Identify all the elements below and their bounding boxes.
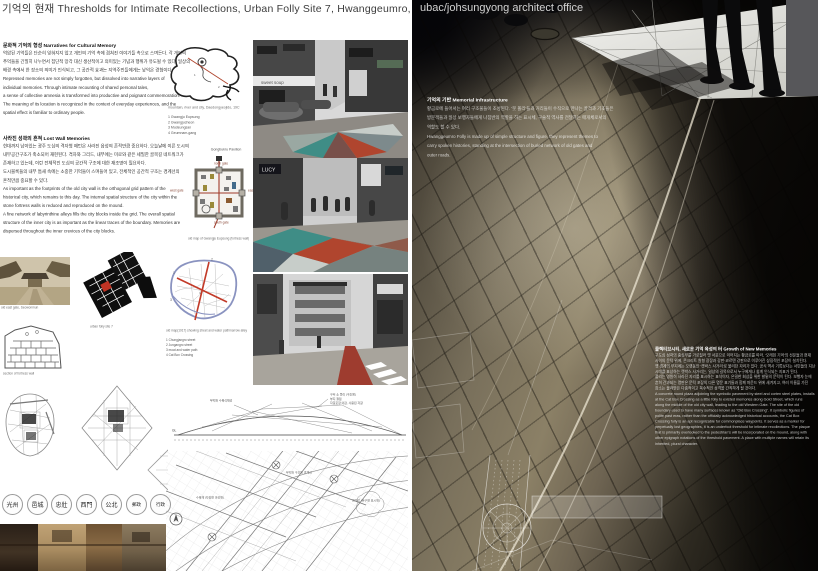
text-line: stone fortress walls is reduced and repr…: [3, 201, 163, 209]
right-edge-structure: [786, 0, 818, 96]
caption: 부지와 구조물 경계선: [286, 470, 312, 475]
seal-stamp-icon: 西門: [76, 494, 97, 515]
shop-sign-text: LUCY: [262, 168, 276, 174]
gate-label-south: south gate: [214, 221, 247, 228]
presentation-board: 기억의 현재 Thresholds for Intimate Recollect…: [0, 0, 818, 571]
historic-photo-strip: [0, 524, 166, 571]
caption: south gate: [214, 221, 229, 224]
ground-level-label: GL: [172, 429, 181, 436]
office-title: ubac/johsungyong architect office: [420, 2, 583, 14]
gate-label-west: west gate: [170, 189, 200, 196]
caption: section of fortress wall: [3, 372, 34, 375]
caption: 수목재 (자갈면 마감재): [196, 495, 224, 500]
svg-text:2: 2: [218, 85, 220, 89]
alley-diagram-diamond: [80, 384, 154, 472]
street-line: [195, 262, 209, 320]
seal-text: 邑城: [31, 500, 43, 509]
fortress-map-caption: old map of Gwangju Eupsung (fortress wal…: [188, 237, 258, 244]
text-line: A fine network of labyrinthine alleys fi…: [3, 210, 163, 218]
caption: west gate: [170, 189, 183, 192]
block-title: 사라진 성곽의 흔적 Lost Wall Memories: [3, 135, 163, 142]
right-panel-photo: ubac/johsungyong architect office 기억의 기반…: [412, 0, 818, 571]
svg-text:1: 1: [173, 271, 175, 275]
seal-text: 忠壯: [55, 500, 67, 509]
street-photo-2: LUCY: [253, 158, 408, 272]
svg-text:4: 4: [199, 291, 201, 295]
manhole-icon: [531, 29, 559, 40]
text-line: 추억들을 긴밀히 나누면서 집단적 망각 대신 생산적이고 의미있는 기념과 행…: [3, 58, 163, 66]
seal-stamp-icon: 光州: [2, 494, 23, 515]
plan-note-right: 경계석 (유구면 표시재): [352, 498, 414, 508]
seal-text: 公北: [105, 500, 117, 509]
text-line: 도시블록들의 내부 틈새 속에는 소중한 기억들이 스며들어 있고, 전체적인 …: [3, 168, 163, 176]
caption: north gate: [214, 162, 228, 165]
caption: old map of Gwangju Eupsung (fortress wal…: [188, 237, 260, 240]
block-title: 콜렉티브시티, 새로운 기억 육성의 터 Growth of New Memor…: [655, 346, 817, 353]
plan-label-mid: 부지와 구조물 경계선: [286, 470, 343, 480]
gate-label-north: north gate: [214, 162, 246, 169]
text-line: As important as the footprints of the ol…: [3, 185, 163, 193]
text-line: boundary used to have many surfaces know…: [655, 408, 817, 414]
block-title: 문화적 기억의 형성 Narratives for Cultural Memor…: [3, 42, 163, 49]
page-title: 기억의 현재 Thresholds for Intimate Recollect…: [2, 1, 457, 16]
text-line: 황금로에 들어서는 여러 구조물들이 조성된다. '뭇 폴리'들과 거리들이 수…: [427, 104, 603, 113]
caption: GL: [172, 429, 176, 433]
route-line: [188, 58, 228, 84]
caption: 자갈포장 마감, 사용된 자갈: [330, 401, 420, 405]
old-gate-photo: [0, 257, 70, 305]
text-line: structure of the inner city is as import…: [3, 218, 163, 226]
alley-diagram-round: [2, 390, 58, 466]
daedongyeojido-sketch-figure: 1 2: [168, 44, 248, 106]
caption: 경계석 (유구면 표시재): [352, 498, 380, 503]
memorial-block: 기억의 기반 Memorial Infrastructure 황금로에 들어서는…: [427, 96, 602, 212]
text-line: 억압된 기억들은 단순히 잊혀지지 않고 개인의 기억 속에 겹쳐진 이야기들 …: [3, 49, 163, 57]
text-line: 역할도 할 수 있다.: [427, 122, 603, 131]
elevation-label-left: 부지와 수목식재선: [210, 398, 260, 408]
left-panel: 기억의 현재 Thresholds for Intimate Recollect…: [0, 0, 412, 571]
round-plaza-plan: [483, 504, 531, 552]
legend-item: 4 Cat Box Crossing: [166, 353, 265, 358]
site-plan-drawing: [166, 451, 408, 571]
text-line: other epigraph notations of the threshol…: [655, 435, 817, 441]
text-line: dispersed throughout the inner crevices …: [3, 227, 163, 235]
svg-text:3: 3: [170, 298, 172, 302]
seal-row: 光州 邑城 忠壯 西門 公北 郵政 行政: [1, 494, 171, 516]
caption: 부지와 수목식재선: [210, 398, 232, 403]
mountain-outline: [171, 48, 238, 101]
wall-sketch-caption: section of fortress wall: [3, 372, 72, 379]
shop-sign-text: sweet soup: [261, 80, 284, 85]
map-1917-figure: 1 2 3 4: [165, 256, 241, 326]
seal-text: 西門: [80, 500, 92, 509]
text-line: a sense of collective amnesia is transfo…: [3, 92, 163, 100]
plan-overlay-drawing: [412, 300, 662, 571]
caption: urban folly site 7: [90, 325, 113, 328]
text-line: individual memories. Through intimate re…: [3, 83, 163, 91]
text-line: historical city, which remains to this d…: [3, 193, 163, 201]
seal-text: 郵政: [132, 502, 141, 508]
text-line: inherited, plural character.: [655, 441, 817, 447]
growth-block: 콜렉티브시티, 새로운 기억 육성의 터 Growth of New Memor…: [655, 346, 817, 539]
text-line: 내부공간구조가 축소되어 재현된다. 격자와 그리드, 내부에는 미로와 같은 …: [3, 151, 163, 159]
seal-stamp-icon: 忠壯: [51, 494, 72, 515]
gate-photo-caption: old east gate, Seowonmun: [1, 306, 84, 313]
text-line: 방문객들과 일상 보행자들에게 나침반의 역할을 하는 표시체, 구술적 역사를…: [427, 113, 603, 122]
text-line: 배경 속에서 한 장소의 의미가 인식되고, 그 공간적 효과는 지역주민들에게…: [3, 66, 163, 74]
street-photo-3: [253, 274, 408, 385]
caption: Gongbukru Pavilion: [196, 148, 256, 152]
seal-stamp-icon: 邑城: [27, 494, 48, 515]
text-line: Hwanggeumro Folly is made up of simple s…: [427, 132, 603, 141]
text-line: The meaning of its location is recognize…: [3, 100, 163, 108]
text-line: carry spoken histories, standing at the …: [427, 141, 603, 150]
text-line: 존재하고 있는데, 이런 전체적인 도심의 공간적 구조에 대한 재조명이 필요…: [3, 159, 163, 167]
block-title: 기억의 기반 Memorial Infrastructure: [427, 96, 603, 104]
svg-text:2: 2: [211, 258, 213, 262]
caption: old east gate, Seowonmun: [1, 306, 38, 309]
text-line: Repressed memories are not simply forgot…: [3, 75, 163, 83]
text-line: outer roads.: [427, 150, 603, 159]
text-line: 현대까지 남아있는 광주 도심의 격자형 패턴은 사라진 읍성의 흔적만큼 중요…: [3, 142, 163, 150]
svg-text:1: 1: [194, 73, 196, 77]
text-line: 구도심 성곽의 중심부를 가로질러 옛 서문으로 이어지는 황금로를 따라, '…: [655, 353, 817, 359]
figure-ground-map: [80, 252, 158, 322]
seal-text: 行政: [156, 502, 165, 508]
text-line: 흔히 간과되는 명판은 문턱 포장의 다른 명문 표기들과 함께 마운드 위에 …: [655, 380, 817, 386]
text-line: spatial effect is familiar to ordinary p…: [3, 108, 163, 116]
seal-stamp-icon: 郵政: [126, 494, 147, 515]
wall-section-sketch: [1, 322, 65, 372]
seal-text: 光州: [6, 500, 18, 509]
plan-note-left: 수목재 (자갈면 마감재): [196, 495, 258, 505]
figure-ground-caption: urban folly site 7: [90, 325, 141, 332]
seal-stamp-icon: 公北: [101, 494, 122, 515]
street-photo-1: sweet soup: [253, 40, 408, 158]
caption: mountain, river and city, Daedongyeojido…: [168, 106, 240, 110]
text-line: 흔적만큼 중요할 수 있다.: [3, 176, 163, 184]
